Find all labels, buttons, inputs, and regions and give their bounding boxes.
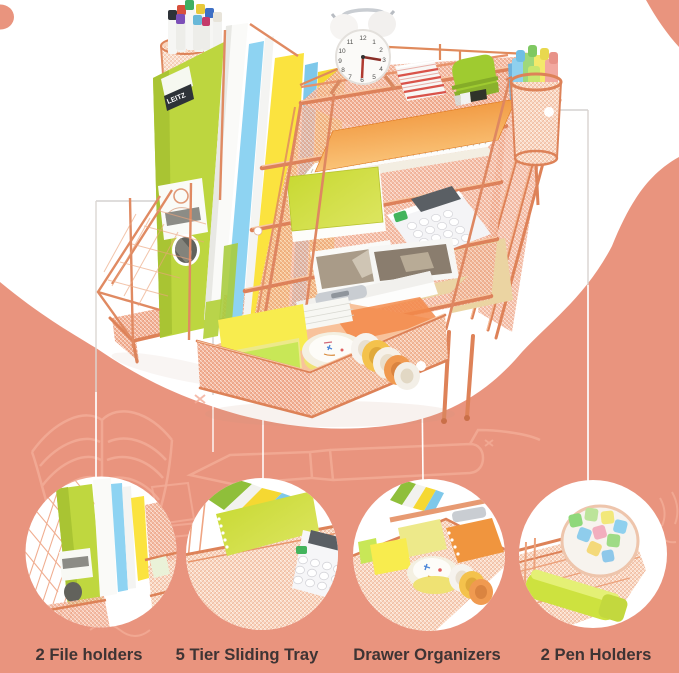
svg-text:2 File holders: 2 File holders [36,645,143,664]
svg-text:5: 5 [372,74,376,81]
svg-text:12: 12 [359,35,367,42]
svg-text:2: 2 [379,47,383,54]
svg-text:9: 9 [338,58,342,65]
svg-text:8: 8 [341,67,345,74]
svg-text:2 Pen Holders: 2 Pen Holders [541,645,652,664]
svg-text:3: 3 [382,57,386,64]
svg-text:10: 10 [338,48,346,55]
svg-text:5 Tier Sliding Tray: 5 Tier Sliding Tray [176,645,319,664]
svg-text:Drawer Organizers: Drawer Organizers [353,645,501,664]
svg-text:7: 7 [348,74,352,81]
svg-text:4: 4 [379,66,383,73]
svg-text:1: 1 [372,39,376,46]
svg-text:11: 11 [347,39,354,46]
svg-text:6: 6 [360,77,364,84]
